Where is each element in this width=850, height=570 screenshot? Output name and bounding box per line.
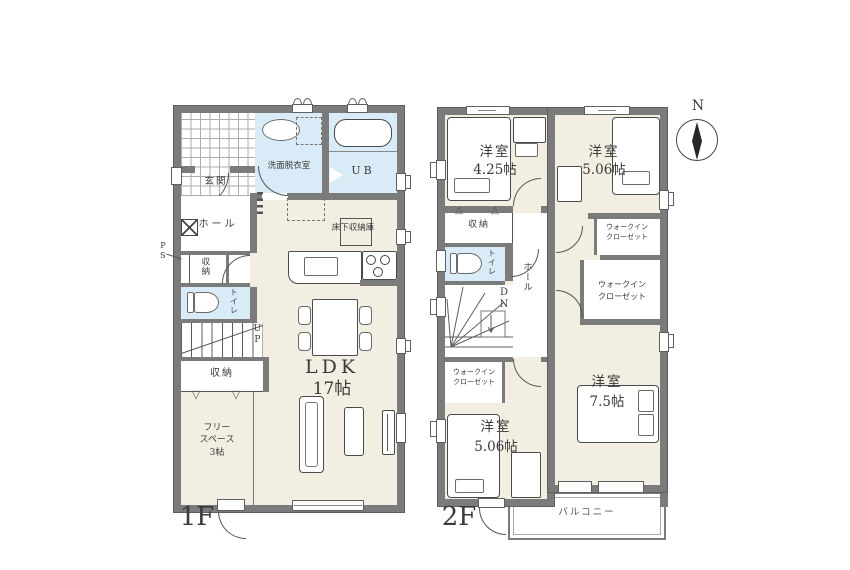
wall-segment: [181, 166, 195, 173]
chair: [298, 332, 311, 351]
chair: [359, 306, 372, 325]
room-sw-size: 5.06帖: [462, 440, 530, 454]
tv-line: [387, 414, 388, 451]
bathtub: [334, 119, 392, 147]
window: [436, 419, 446, 443]
folding-door-mark: ▽: [188, 389, 204, 401]
front-door: [171, 167, 182, 185]
compass-north-label: N: [689, 99, 707, 114]
storage-lower-label: 収納: [196, 369, 248, 380]
floor-label-1f: 1F: [172, 504, 222, 531]
window-flap: [430, 299, 437, 315]
wall-segment: [250, 287, 257, 323]
casement-arc: [348, 98, 357, 105]
dining-table: [312, 299, 358, 356]
room-ne-name: 洋室: [578, 145, 630, 159]
balcony-window: [598, 481, 644, 493]
pillow: [455, 479, 484, 493]
ps-slot: [181, 255, 190, 283]
ub-partition-line: [329, 151, 397, 152]
balcony-window: [558, 481, 592, 493]
casement-arc: [303, 98, 312, 105]
room-nw-size: 4.25帖: [461, 163, 529, 177]
wic-e-label-2: クローゼット: [590, 293, 654, 301]
wall-niche-marks: [257, 192, 263, 218]
washer-space: [296, 117, 322, 145]
window: [436, 160, 446, 180]
toilet-bowl: [194, 292, 219, 313]
wall-segment: [322, 113, 329, 193]
sliding-window-line: [598, 110, 616, 111]
folding-door-mark: ▽: [228, 389, 244, 401]
wall-segment: [502, 362, 505, 403]
desk: [511, 452, 541, 498]
wall-segment: [250, 193, 257, 253]
window-flap: [405, 175, 411, 189]
burner: [373, 267, 383, 277]
wall-segment: [541, 206, 547, 213]
wall-segment: [541, 357, 547, 362]
room-sw-name: 洋室: [470, 420, 522, 434]
floor-label-2f: 2F: [434, 504, 484, 531]
wic-ne-label-2: クローゼット: [596, 234, 658, 241]
window-flap: [405, 340, 411, 352]
wall-segment: [580, 319, 660, 325]
wic-sw-label-1: ウォークイン: [447, 369, 501, 376]
wall-segment: [660, 493, 668, 507]
window-flap: [430, 162, 437, 178]
window: [292, 104, 313, 113]
freespace-label-2: スペース: [189, 436, 245, 445]
stairs-down-label: DN: [498, 287, 509, 311]
washroom-label: 洗面脱衣室: [253, 162, 325, 171]
compass-needle-north: [692, 122, 702, 141]
freespace-label-3: 3帖: [203, 449, 231, 458]
room-se-size: 7.5帖: [577, 395, 637, 409]
chair: [359, 332, 372, 351]
desk: [513, 117, 546, 143]
back-door-arc: [218, 511, 246, 539]
freespace-label-1: フリー: [193, 424, 241, 433]
freespace-divider: [253, 392, 254, 505]
toilet-tank: [187, 292, 194, 313]
pantry-dashed-box: [287, 193, 325, 221]
burner: [380, 255, 390, 265]
folding-door-mark: △: [452, 206, 466, 217]
wic-e-label-1: ウォークイン: [590, 281, 654, 289]
toilet-bowl: [457, 253, 482, 274]
ldk-name-label: LDK: [300, 358, 364, 378]
low-table: [344, 407, 364, 456]
balcony-label: バルコニー: [545, 508, 629, 518]
storage-upper-label: 収納: [200, 257, 209, 276]
pillow: [454, 178, 490, 193]
underfloor-storage-label: 床下収納庫: [321, 224, 385, 233]
ub-door-mark: [330, 167, 343, 183]
kitchen-sink: [304, 257, 338, 276]
burner: [366, 255, 376, 265]
hall-label: ホール: [192, 220, 244, 231]
floorplan-canvas: 玄関 洗面脱衣室 UB ホール 収納 PS トイレ: [0, 0, 850, 570]
ub-label: UB: [340, 165, 386, 177]
room-nw-name: 洋室: [469, 145, 521, 159]
toilet-label-2f: トイレ: [487, 249, 495, 276]
sink: [262, 119, 300, 141]
window-flap: [668, 192, 674, 206]
room-ne-size: 5.06帖: [570, 163, 638, 177]
tv-board: [382, 410, 395, 455]
genkan-label: 玄関: [194, 177, 238, 187]
wic-ne-label-1: ウォークイン: [596, 224, 658, 231]
wall-segment: [594, 219, 597, 255]
ps-label: PS: [158, 241, 166, 261]
folding-door-mark: △: [488, 206, 502, 217]
toilet-tank: [450, 253, 457, 274]
room-se-name: 洋室: [581, 375, 633, 389]
pillow: [638, 414, 654, 436]
pillow: [638, 390, 654, 412]
wic-sw-label-2: クローゼット: [447, 379, 501, 386]
stairs-up-label: UP: [252, 324, 261, 346]
chair: [298, 306, 311, 325]
window-flap: [405, 231, 411, 243]
wall-segment: [360, 280, 397, 286]
storage-2f-label: 収納: [458, 221, 500, 230]
sofa-cushion-line: [305, 402, 318, 467]
compass-needle-south: [692, 141, 702, 160]
wic-e: [584, 260, 660, 319]
wall-segment: [263, 357, 269, 392]
window: [396, 413, 406, 443]
window: [436, 250, 446, 272]
window: [436, 297, 446, 317]
casement-arc: [358, 98, 367, 105]
sliding-window-line: [294, 505, 362, 506]
sliding-window-line: [478, 110, 496, 111]
window-flap: [430, 421, 437, 437]
toilet-label-1f: トイレ: [229, 288, 237, 315]
casement-arc: [293, 98, 302, 105]
window: [347, 104, 368, 113]
window-flap: [668, 334, 674, 348]
